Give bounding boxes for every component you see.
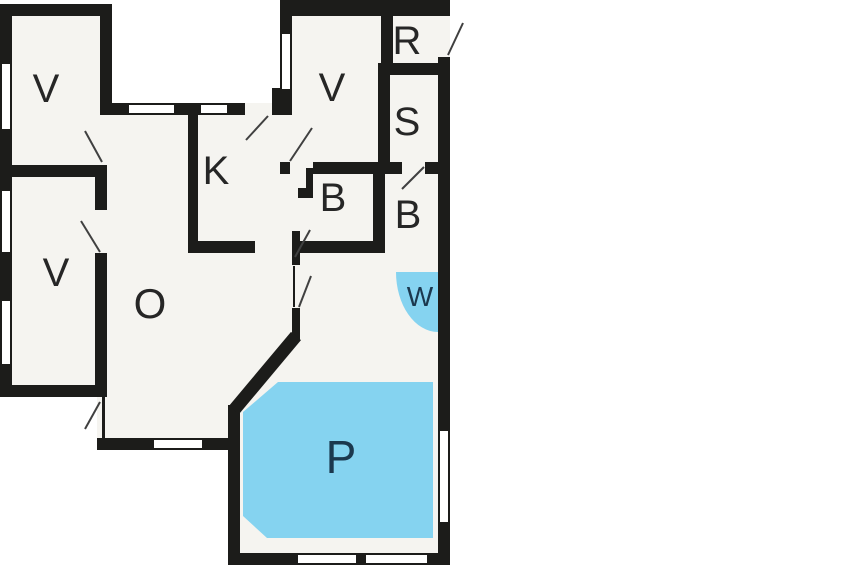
wall-segment [280,4,292,33]
room-label-whirlpool: W [407,281,434,312]
wall-segment [0,165,103,177]
wall-segment [292,241,385,253]
window [153,439,203,449]
wall-segment [228,553,297,565]
wall-segment [228,405,240,565]
wall-segment [373,162,385,253]
wall-segment [0,130,12,190]
wall-segment [97,438,153,450]
window [439,430,449,523]
room-label-storage-room: R [393,19,422,63]
window [200,104,228,114]
room-label-living-room: O [134,280,167,327]
wall-segment [0,4,12,63]
window [1,190,11,253]
wall-segment [0,385,107,397]
window [281,33,291,90]
wall-segment [95,165,107,210]
wall-segment [100,103,128,115]
window [1,300,11,365]
room-label-sauna: S [394,100,421,144]
window [1,63,11,130]
wall-segment [203,438,240,450]
room-label-bathroom-right: B [395,193,422,237]
room-label-kitchen: K [203,149,230,193]
wall-segment [95,253,107,397]
wall-segment [0,4,112,16]
floorplan-drawing: V V V R S B B K O W P [0,0,848,565]
wall-segment [378,75,390,174]
wall-segment [292,231,300,265]
wall-segment [298,188,313,198]
room-label-bathroom-left: B [320,176,347,220]
wall-segment [175,103,200,115]
room-label-bedroom-top-middle: V [319,66,346,110]
window [297,554,357,564]
wall-segment [357,553,365,565]
wall-segment [438,57,450,430]
glass-door-leaf [293,266,295,307]
window [365,554,428,564]
glass-door-leaf [102,397,105,438]
wall-segment [188,241,255,253]
wall-segment [428,553,450,565]
floorplan-canvas: V V V R S B B K O W P [0,0,848,565]
wall-segment [0,253,12,300]
wall-segment [280,0,450,16]
room-label-pool: P [326,431,357,483]
wall-segment [100,4,112,115]
room-label-bedroom-top-left: V [33,67,60,111]
wall-segment [228,103,245,115]
wall-segment [188,115,198,253]
wall-segment [280,162,290,174]
wall-segment [280,90,292,115]
window [128,104,175,114]
room-label-bedroom-left: V [43,251,70,295]
